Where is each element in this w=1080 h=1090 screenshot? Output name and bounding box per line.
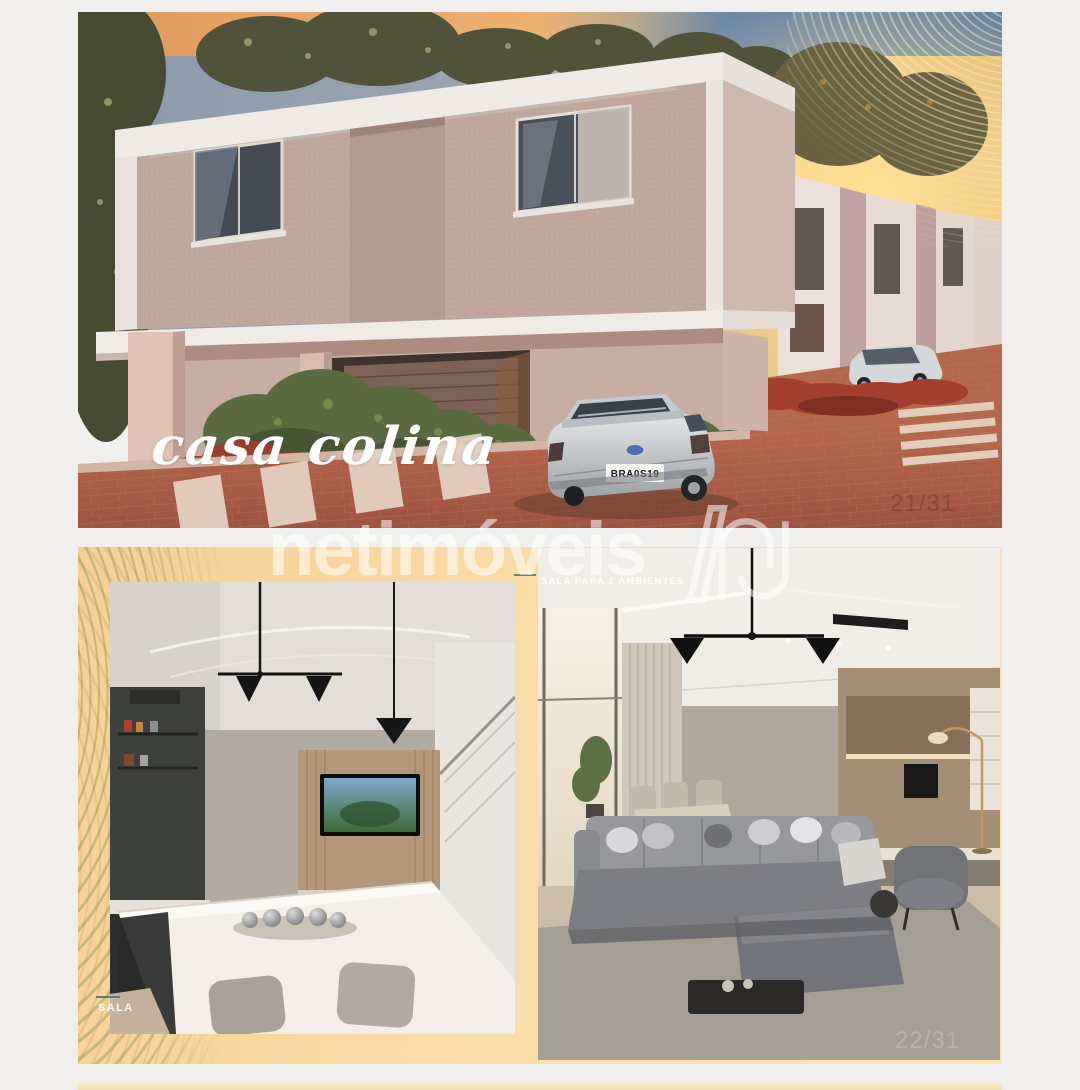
living-room-image <box>538 548 1000 1060</box>
dining-room-image <box>110 582 515 1034</box>
label-accent-dash <box>514 574 536 576</box>
photo-interior-collage[interactable]: SALA SALA PARA 2 AMBIENTES 22/31 <box>78 547 1002 1064</box>
next-photo-edge[interactable] <box>78 1081 1002 1090</box>
room-label-sala: SALA <box>98 1002 134 1014</box>
photo-counter: 22/31 <box>895 1027 960 1055</box>
photo-caption-script: casa colina <box>149 416 501 477</box>
room-label-sala-2-ambientes: SALA PARA 2 AMBIENTES <box>541 576 684 587</box>
photo-counter: 21/31 <box>890 490 955 518</box>
tv-panel <box>298 750 440 890</box>
label-accent-dash <box>96 996 120 998</box>
photo-exterior[interactable]: BRA0S19 casa colina 21/31 <box>78 12 1002 528</box>
listing-photo-gallery: { "page": { "background_color": "#f0efee… <box>0 0 1080 1090</box>
